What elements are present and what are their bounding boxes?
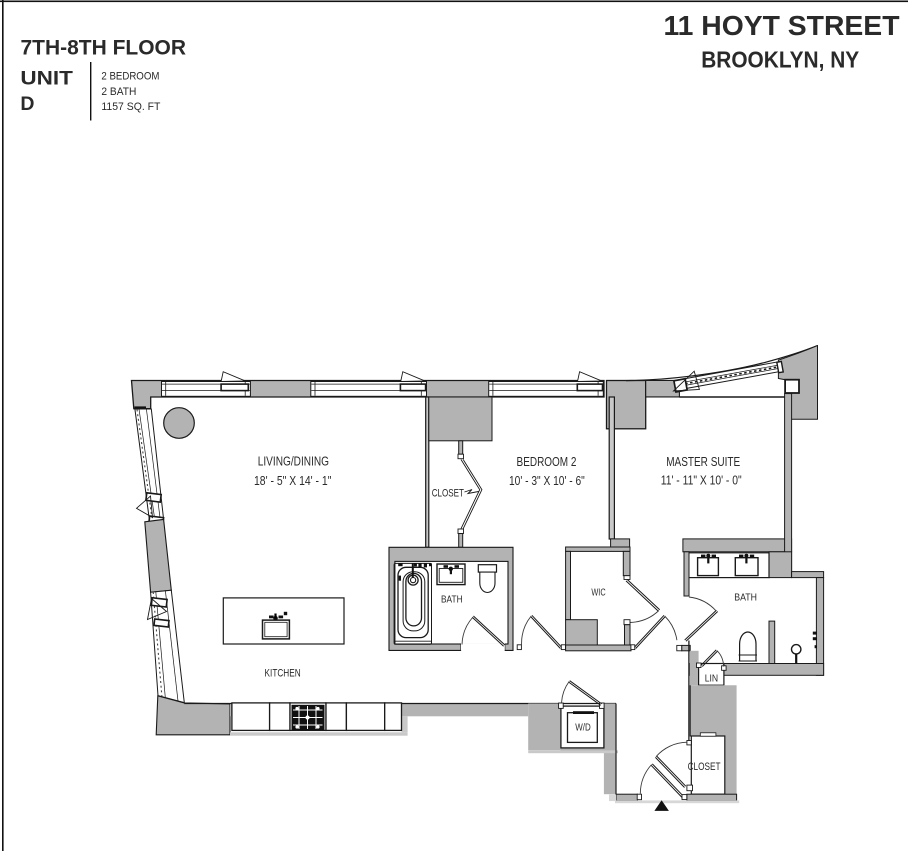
svg-text:BATH: BATH (734, 591, 757, 603)
svg-text:BROOKLYN, NY: BROOKLYN, NY (701, 47, 859, 73)
svg-text:LIN: LIN (705, 672, 718, 684)
svg-text:2 BATH: 2 BATH (101, 86, 136, 98)
svg-text:WIC: WIC (591, 587, 606, 599)
svg-text:CLOSET: CLOSET (432, 488, 465, 500)
svg-text:CLOSET: CLOSET (688, 761, 721, 773)
svg-text:18' - 5" X 14' - 1": 18' - 5" X 14' - 1" (254, 473, 331, 488)
svg-text:UNIT: UNIT (20, 67, 73, 89)
svg-text:D: D (20, 93, 34, 115)
svg-text:MASTER SUITE: MASTER SUITE (666, 454, 740, 469)
svg-text:BATH: BATH (441, 594, 463, 606)
svg-text:KITCHEN: KITCHEN (265, 667, 301, 679)
svg-text:1157 SQ. FT: 1157 SQ. FT (101, 101, 160, 113)
svg-text:7TH-8TH FLOOR: 7TH-8TH FLOOR (21, 36, 187, 60)
svg-text:11' - 11" X 10' - 0": 11' - 11" X 10' - 0" (661, 472, 742, 487)
svg-text:2 BEDROOM: 2 BEDROOM (101, 71, 159, 83)
svg-text:W/D: W/D (575, 721, 591, 733)
svg-text:LIVING/DINING: LIVING/DINING (258, 454, 329, 469)
svg-text:BEDROOM 2: BEDROOM 2 (517, 454, 577, 469)
svg-text:11 HOYT STREET: 11 HOYT STREET (664, 10, 900, 41)
svg-text:10' - 3" X 10' - 6": 10' - 3" X 10' - 6" (509, 473, 585, 488)
